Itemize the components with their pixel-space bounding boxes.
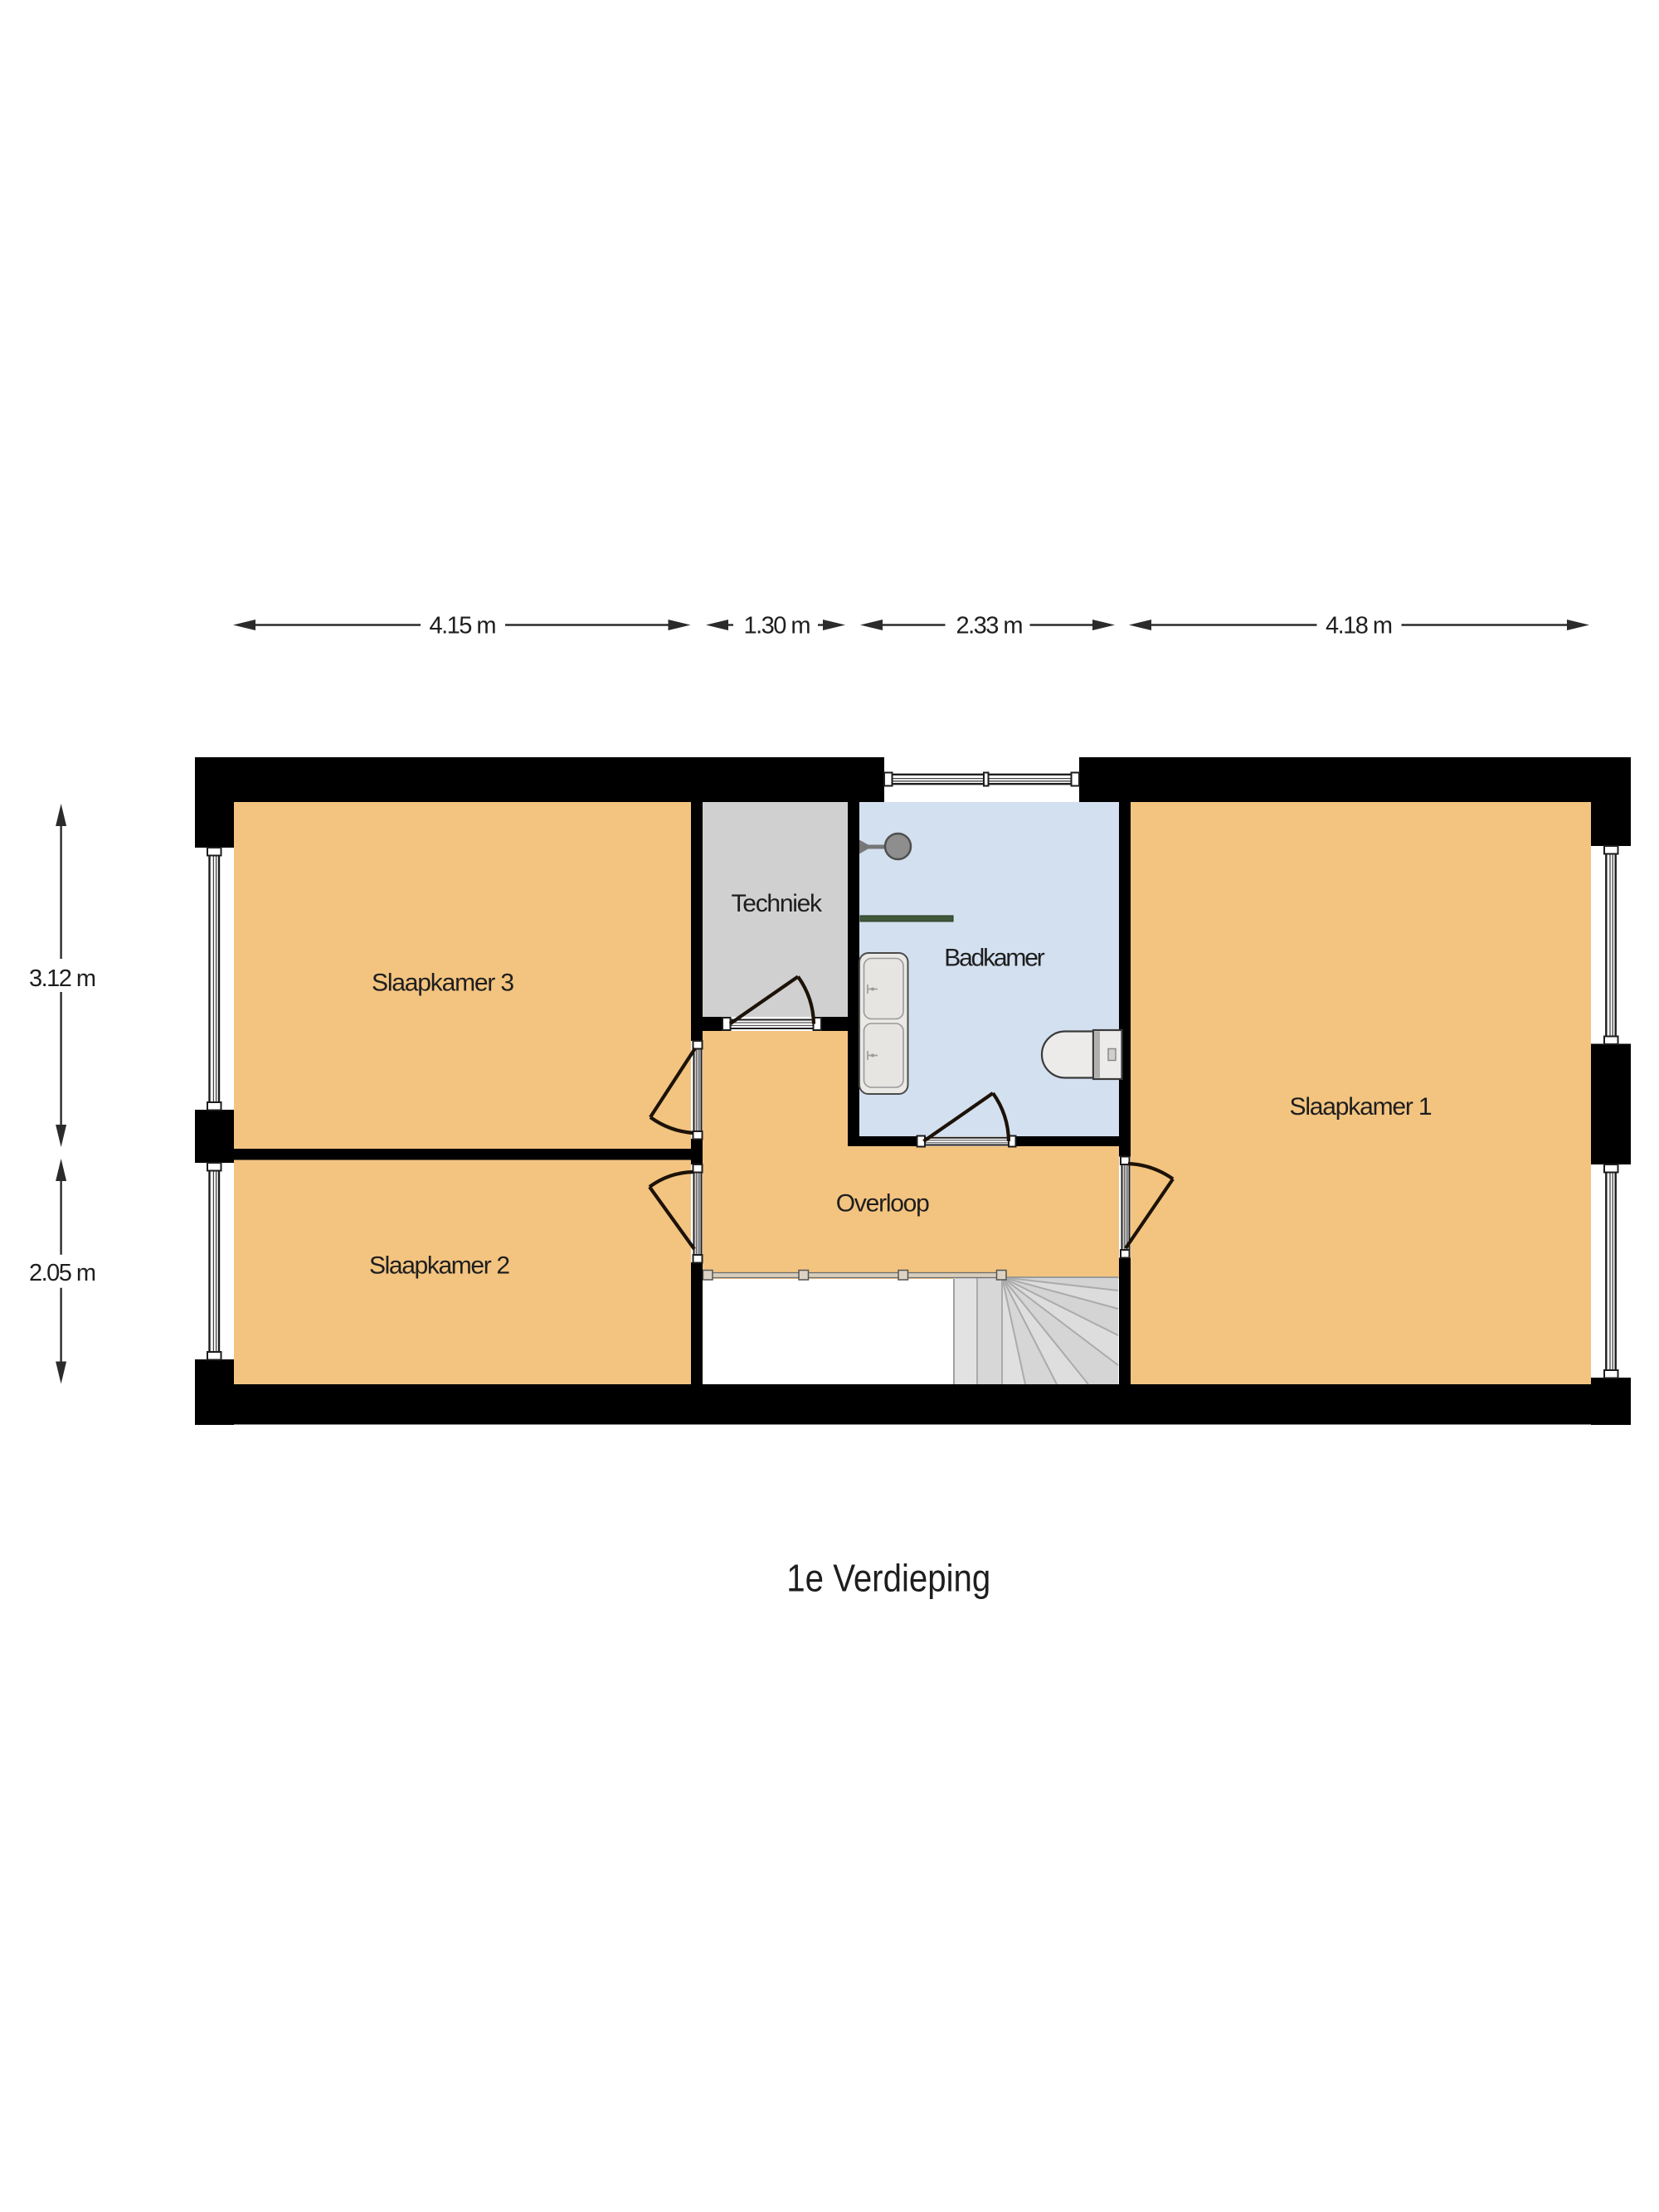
svg-text:4.15 m: 4.15 m: [430, 613, 497, 639]
svg-text:2.33 m: 2.33 m: [956, 613, 1024, 639]
svg-text:Techniek: Techniek: [732, 890, 824, 917]
svg-text:Badkamer: Badkamer: [944, 945, 1045, 972]
svg-text:1.30 m: 1.30 m: [744, 613, 811, 639]
svg-text:2.05 m: 2.05 m: [29, 1260, 96, 1286]
svg-text:Slaapkamer 1: Slaapkamer 1: [1290, 1093, 1433, 1121]
svg-text:Slaapkamer 2: Slaapkamer 2: [369, 1252, 510, 1280]
svg-text:3.12 m: 3.12 m: [29, 965, 96, 992]
svg-text:Slaapkamer 3: Slaapkamer 3: [372, 970, 514, 997]
svg-text:1e Verdieping: 1e Verdieping: [786, 1557, 990, 1600]
svg-text:Overloop: Overloop: [836, 1190, 930, 1218]
svg-text:4.18 m: 4.18 m: [1326, 613, 1393, 639]
